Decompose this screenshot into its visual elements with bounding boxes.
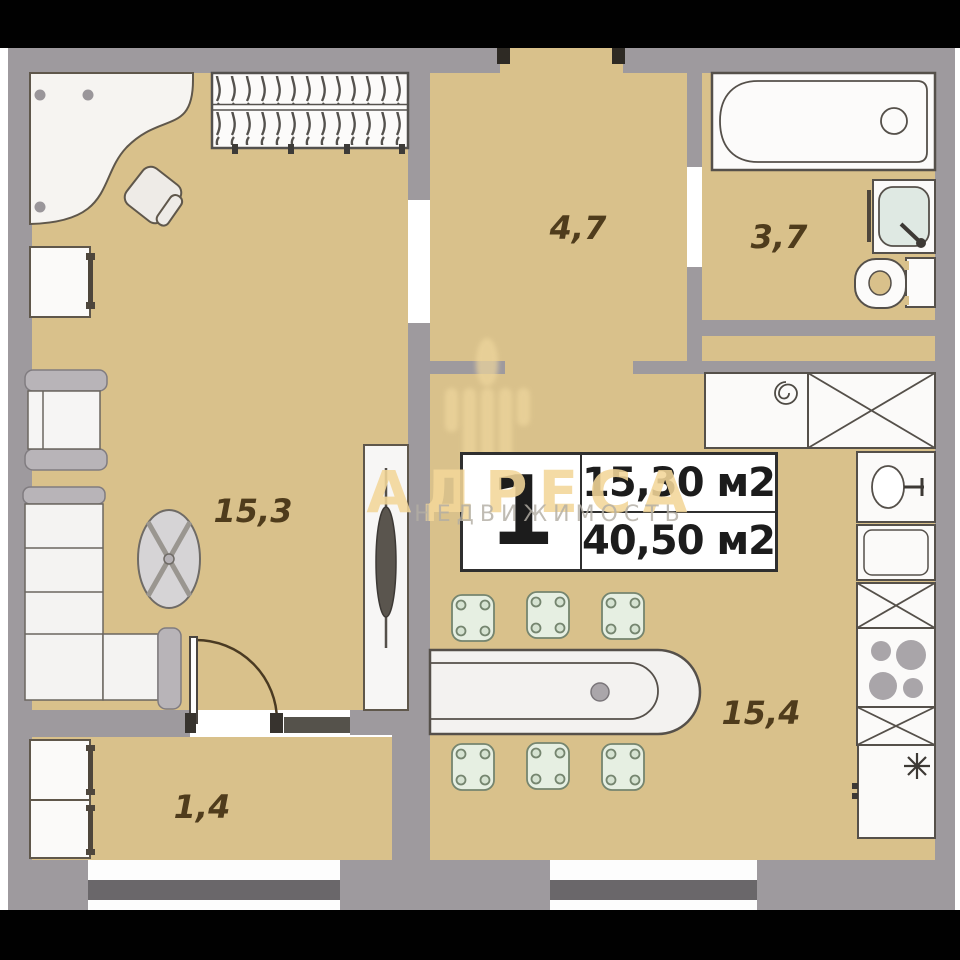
bathroom-washbasin bbox=[867, 180, 935, 253]
toilet-tank bbox=[906, 258, 935, 307]
washing-machine-counter bbox=[705, 373, 808, 448]
burner bbox=[903, 678, 923, 698]
dresser bbox=[30, 247, 95, 317]
bar-sink-drain bbox=[591, 683, 609, 701]
letterbox-bottom bbox=[0, 910, 960, 960]
stool bbox=[527, 743, 569, 789]
stool bbox=[452, 595, 494, 641]
fridge bbox=[852, 745, 935, 838]
room-label-hallway: 4,7 bbox=[550, 209, 607, 247]
room-label-bathroom: 3,7 bbox=[751, 218, 808, 256]
floorplan-image: 4,7 3,7 15,3 15,4 1,4 1 15,30 м2 40,50 м… bbox=[0, 0, 960, 960]
desk-knob bbox=[35, 202, 46, 213]
bathtub bbox=[712, 73, 935, 170]
balcony-door bbox=[185, 637, 283, 733]
round-table bbox=[138, 510, 200, 608]
kitchen-sink bbox=[857, 452, 935, 522]
desk-knob bbox=[35, 90, 46, 101]
room-label-kitchen-living: 15,4 bbox=[722, 694, 801, 732]
stool bbox=[602, 744, 644, 790]
room-label-balcony: 1,4 bbox=[174, 788, 231, 826]
stool bbox=[527, 592, 569, 638]
desk-knob bbox=[83, 90, 94, 101]
letterbox-top bbox=[0, 0, 960, 48]
stove bbox=[857, 628, 935, 707]
kitchen-cabinet-x-low bbox=[857, 707, 935, 745]
desk-chair bbox=[121, 163, 186, 228]
bar-counter bbox=[430, 650, 700, 734]
stool bbox=[452, 744, 494, 790]
kitchen-cabinet-x-mid bbox=[857, 583, 935, 628]
wardrobe-hangers bbox=[212, 73, 408, 154]
balcony-cabinets bbox=[30, 740, 95, 858]
stool bbox=[602, 593, 644, 639]
burner bbox=[871, 641, 891, 661]
armchair bbox=[25, 370, 107, 470]
burner bbox=[896, 640, 926, 670]
balcony-window-glass bbox=[88, 880, 340, 900]
burner bbox=[869, 672, 897, 700]
room-label-living: 15,3 bbox=[214, 492, 293, 530]
watermark-tagline: НЕДВИЖИМОСТЬ bbox=[395, 502, 705, 527]
toilet bbox=[855, 258, 935, 308]
kitchen-counter bbox=[857, 525, 935, 580]
kitchen-window-glass bbox=[550, 880, 757, 900]
kitchen-cabinet-x-top bbox=[808, 373, 935, 448]
